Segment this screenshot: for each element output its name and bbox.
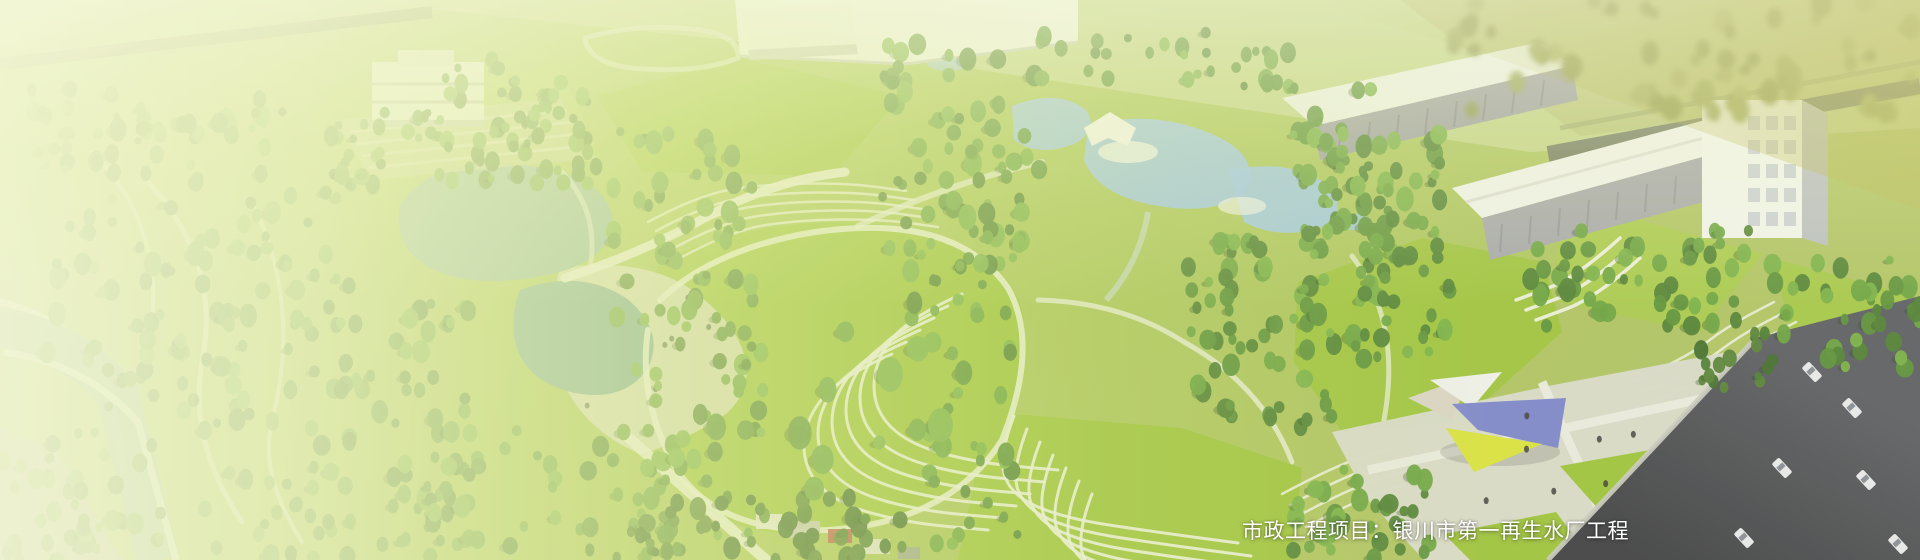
project-caption: 市政工程项目：银川市第一再生水厂工程 — [1242, 519, 1629, 545]
aerial-rendering — [0, 0, 1920, 560]
project-caption-text: 市政工程项目：银川市第一再生水厂工程 — [1242, 520, 1629, 543]
hero-banner: 市政工程项目：银川市第一再生水厂工程 — [0, 0, 1920, 560]
colour-washes — [0, 0, 1920, 560]
